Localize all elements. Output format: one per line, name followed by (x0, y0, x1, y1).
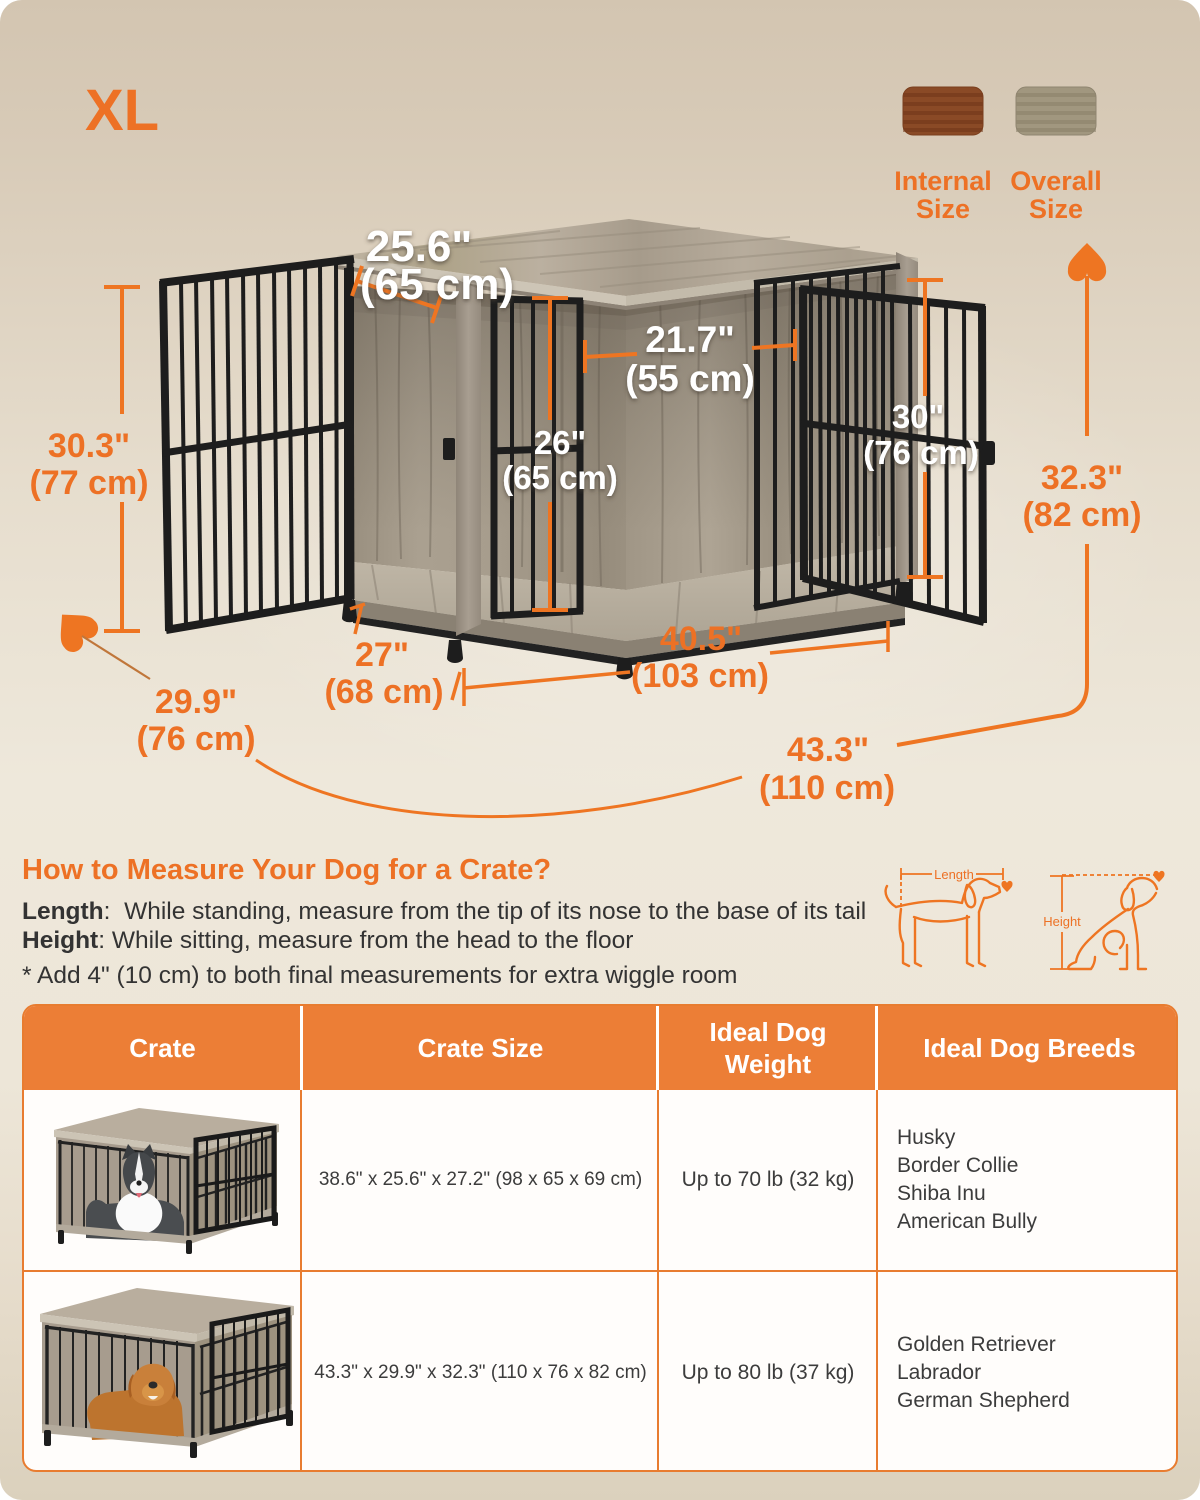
svg-text:30.3": 30.3" (48, 427, 130, 465)
svg-text:Height: Height (1043, 914, 1081, 929)
svg-text:Length: Length (934, 867, 974, 882)
svg-text:29.9": 29.9" (155, 683, 237, 721)
svg-text:(103 cm): (103 cm) (631, 657, 769, 695)
svg-text:Size: Size (1029, 194, 1083, 224)
svg-text:(76 cm): (76 cm) (136, 720, 255, 758)
svg-text:(77 cm): (77 cm) (29, 464, 148, 502)
svg-text:(65 cm): (65 cm) (502, 459, 618, 496)
svg-text:Overall: Overall (1010, 166, 1102, 196)
svg-text:(76 cm): (76 cm) (863, 434, 979, 471)
svg-text:27": 27" (355, 636, 409, 674)
svg-text:(110 cm): (110 cm) (759, 769, 895, 807)
svg-text:(65 cm): (65 cm) (360, 260, 514, 309)
svg-text:21.7": 21.7" (645, 319, 735, 360)
svg-text:32.3": 32.3" (1041, 459, 1123, 497)
svg-text:Size: Size (916, 194, 970, 224)
svg-text:43.3": 43.3" (787, 731, 869, 769)
svg-text:30": 30" (892, 398, 944, 435)
svg-text:(55 cm): (55 cm) (625, 358, 755, 399)
svg-text:(82 cm): (82 cm) (1022, 496, 1141, 534)
svg-text:Internal: Internal (894, 166, 992, 196)
svg-text:XL: XL (85, 78, 159, 143)
svg-text:40.5": 40.5" (660, 620, 742, 658)
svg-text:26": 26" (534, 424, 586, 461)
svg-text:(68 cm): (68 cm) (324, 673, 443, 711)
